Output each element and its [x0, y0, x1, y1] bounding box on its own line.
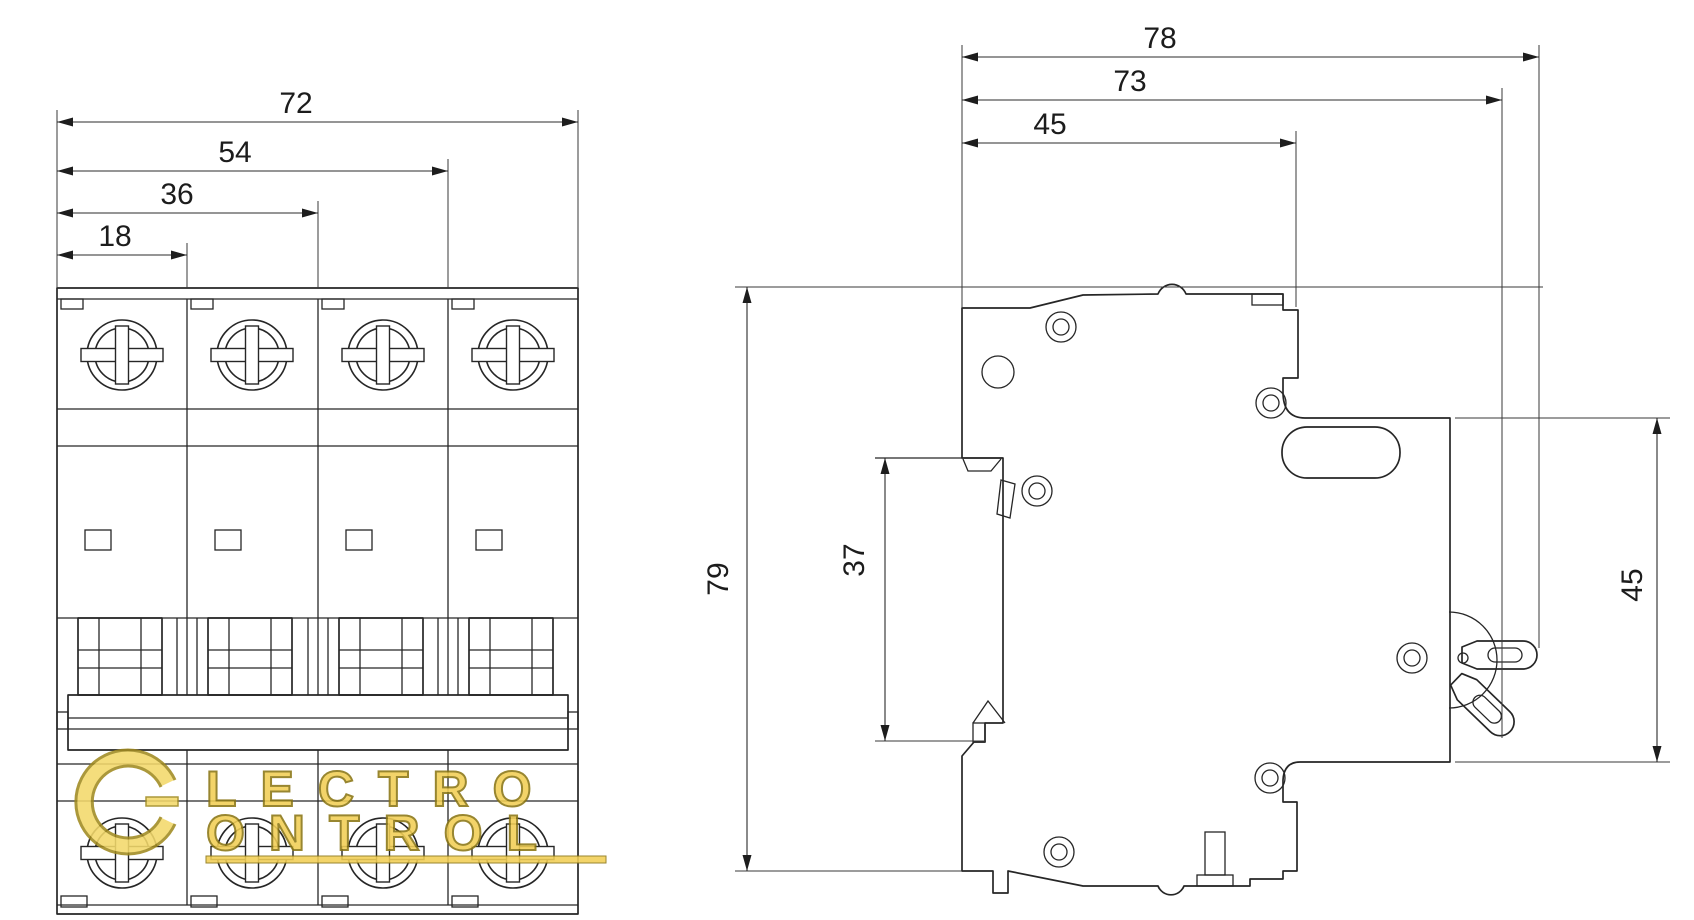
clip-foot-pad: [1197, 875, 1233, 886]
rivet-icon: [1256, 388, 1286, 418]
side-view: [875, 284, 1537, 894]
rivet-icon: [1022, 476, 1052, 506]
rivet-icon: [1044, 837, 1074, 867]
toggle-handle: [469, 618, 553, 695]
dim-front-36: 36: [57, 178, 318, 218]
label-windows: [85, 530, 502, 550]
clip-spring-tab: [997, 480, 1015, 518]
top-notches: [61, 299, 474, 309]
toggle-handle: [339, 618, 423, 695]
mold-circle: [982, 356, 1014, 388]
side-view-dimensions: 78 73 45 79 37 45: [702, 22, 1670, 871]
label-oblong: [1282, 427, 1400, 478]
dim-label-45-right: 45: [1616, 568, 1649, 601]
watermark-line2: ONTROL: [206, 805, 561, 861]
dim-front-18: 18: [57, 220, 187, 260]
dim-side-45-top: 45: [962, 108, 1296, 148]
dim-label-36: 36: [160, 178, 193, 211]
dim-side-73: 73: [962, 65, 1502, 105]
din-clip-details: [875, 458, 1233, 886]
dim-label-45-top: 45: [1033, 108, 1066, 141]
dim-label-37: 37: [838, 543, 871, 576]
toggle-handles: [78, 618, 553, 695]
technical-drawing: 72 54 36 18: [0, 0, 1694, 920]
dim-side-79: 79: [702, 287, 752, 871]
side-profile-outline: [962, 284, 1450, 894]
watermark-underline: [206, 856, 606, 863]
dim-label-18: 18: [98, 220, 131, 253]
toggle-lever-assembly: [1446, 612, 1537, 741]
dim-label-78: 78: [1143, 22, 1176, 55]
rivet-icon: [1397, 643, 1427, 673]
dim-front-54: 54: [57, 136, 448, 176]
toggle-handle: [78, 618, 162, 695]
top-edge-tab: [1252, 294, 1283, 305]
lever-position-off: [1446, 669, 1519, 741]
dim-label-79: 79: [702, 562, 735, 595]
toggle-handle: [208, 618, 292, 695]
screw-terminal-icon: [81, 320, 163, 390]
lever-pivot: [1458, 653, 1468, 663]
drawing-canvas: 72 54 36 18: [0, 0, 1694, 920]
lever-position-on: [1462, 641, 1537, 669]
watermark-logo: LECTRO ONTROL: [76, 750, 606, 863]
rivet-icon: [1046, 312, 1076, 342]
clip-pointer-notch: [973, 723, 985, 742]
clip-release-tab: [1205, 832, 1225, 875]
front-view-dimensions: 72 54 36 18: [57, 87, 578, 288]
screw-terminal-icon: [342, 320, 424, 390]
dim-label-72: 72: [279, 87, 312, 120]
dim-label-54: 54: [218, 136, 251, 169]
toggle-tie-bar: [57, 695, 578, 750]
screw-terminal-icon: [472, 320, 554, 390]
dim-side-45-right: 45: [1616, 418, 1662, 762]
dim-label-73: 73: [1113, 65, 1146, 98]
dim-side-78: 78: [962, 22, 1539, 62]
screw-terminal-icon: [211, 320, 293, 390]
dim-side-37: 37: [838, 458, 890, 741]
rivets: [982, 312, 1427, 867]
clip-pointer-triangle: [973, 701, 1005, 723]
dim-front-72: 72: [57, 87, 578, 127]
brand-glyph-icon: [76, 750, 178, 854]
rivet-icon: [1255, 763, 1285, 793]
clip-notch: [963, 459, 1001, 471]
